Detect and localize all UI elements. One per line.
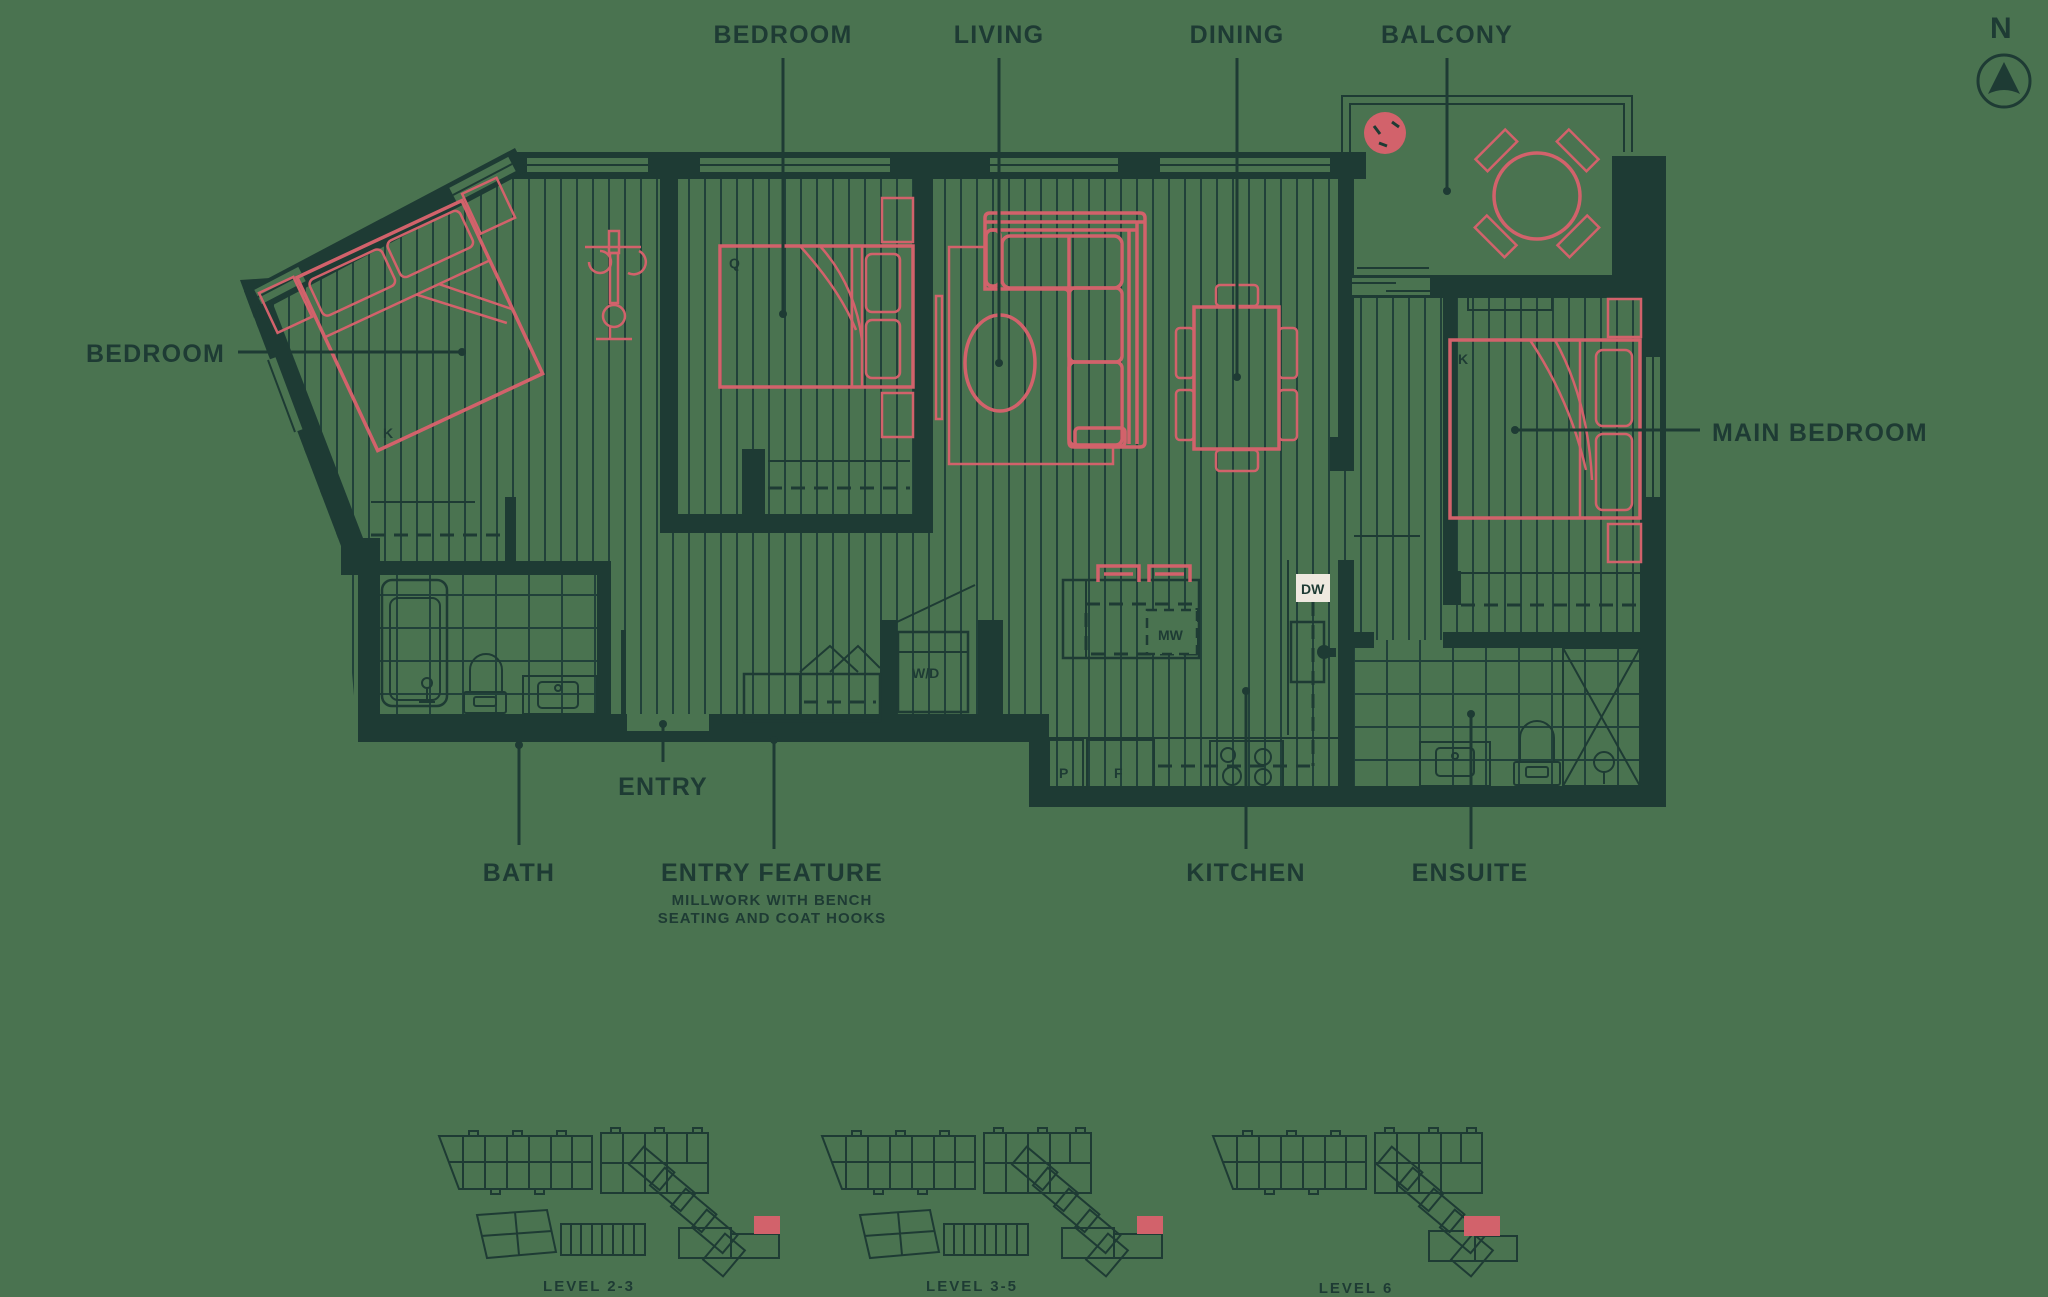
svg-text:N: N <box>1990 12 2012 45</box>
svg-text:ENTRY: ENTRY <box>618 773 708 801</box>
svg-text:MILLWORK WITH BENCH: MILLWORK WITH BENCH <box>672 892 873 909</box>
svg-text:P: P <box>1059 765 1068 781</box>
svg-text:W/D: W/D <box>912 665 939 681</box>
svg-text:BEDROOM: BEDROOM <box>86 340 225 368</box>
svg-text:DINING: DINING <box>1190 21 1285 49</box>
svg-text:Q: Q <box>729 255 740 271</box>
svg-text:K: K <box>1458 351 1468 367</box>
svg-text:BALCONY: BALCONY <box>1381 21 1513 49</box>
svg-text:LEVEL 6: LEVEL 6 <box>1319 1280 1394 1297</box>
svg-text:K: K <box>383 425 393 441</box>
svg-text:LEVEL 2-3: LEVEL 2-3 <box>543 1278 635 1295</box>
svg-text:SEATING AND COAT HOOKS: SEATING AND COAT HOOKS <box>658 910 886 927</box>
svg-text:LEVEL 3-5: LEVEL 3-5 <box>926 1278 1018 1295</box>
svg-text:ENTRY FEATURE: ENTRY FEATURE <box>661 859 883 887</box>
svg-text:BATH: BATH <box>483 859 555 887</box>
svg-text:KITCHEN: KITCHEN <box>1186 859 1306 887</box>
svg-text:BEDROOM: BEDROOM <box>714 21 853 49</box>
svg-text:F: F <box>1114 765 1123 781</box>
svg-text:MW: MW <box>1158 627 1184 643</box>
svg-text:ENSUITE: ENSUITE <box>1412 859 1529 887</box>
svg-text:MAIN BEDROOM: MAIN BEDROOM <box>1712 419 1928 447</box>
svg-text:LIVING: LIVING <box>954 21 1045 49</box>
svg-text:DW: DW <box>1301 581 1325 597</box>
